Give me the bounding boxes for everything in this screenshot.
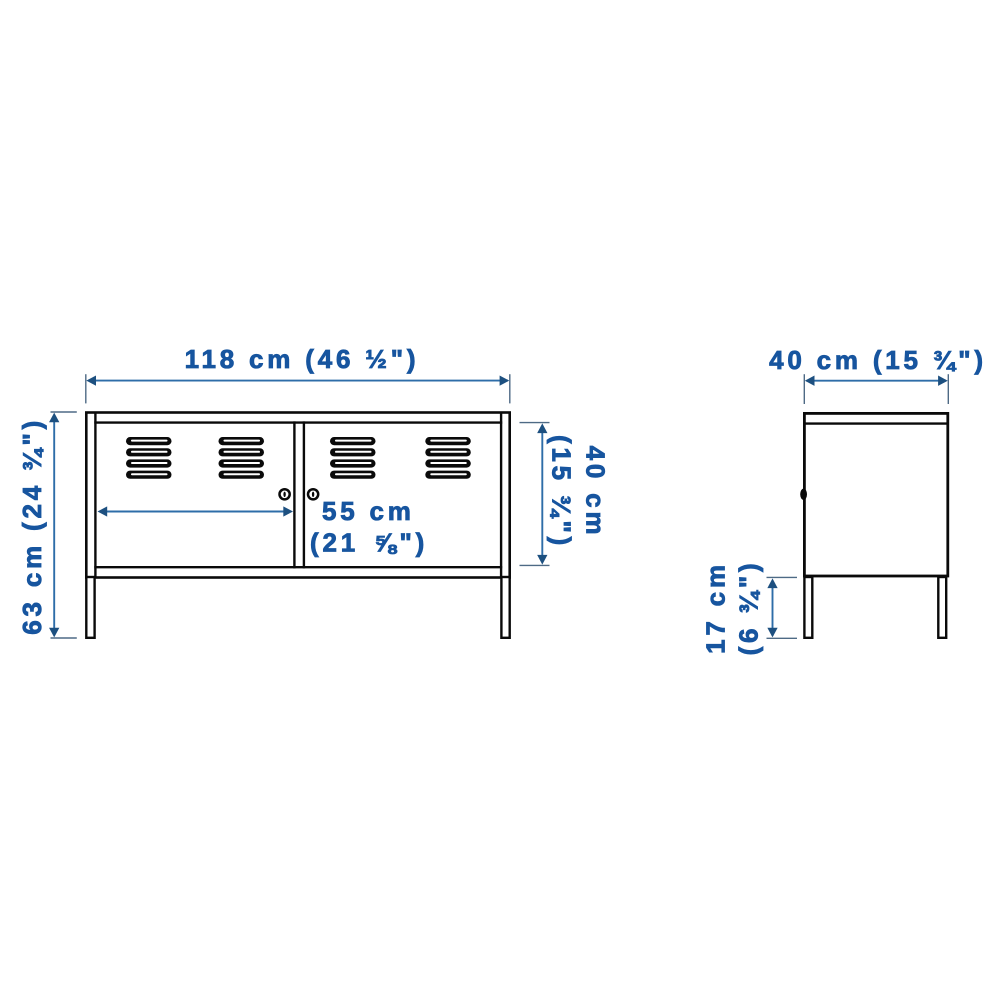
svg-text:118 cm (46 ½"): 118 cm (46 ½")	[185, 344, 420, 374]
svg-text:63 cm (24 ¾"): 63 cm (24 ¾")	[17, 417, 47, 635]
svg-text:40 cm (15 ¾"): 40 cm (15 ¾")	[769, 345, 987, 375]
svg-text:55 cm(21 ⅝"): 55 cm(21 ⅝")	[310, 496, 428, 558]
